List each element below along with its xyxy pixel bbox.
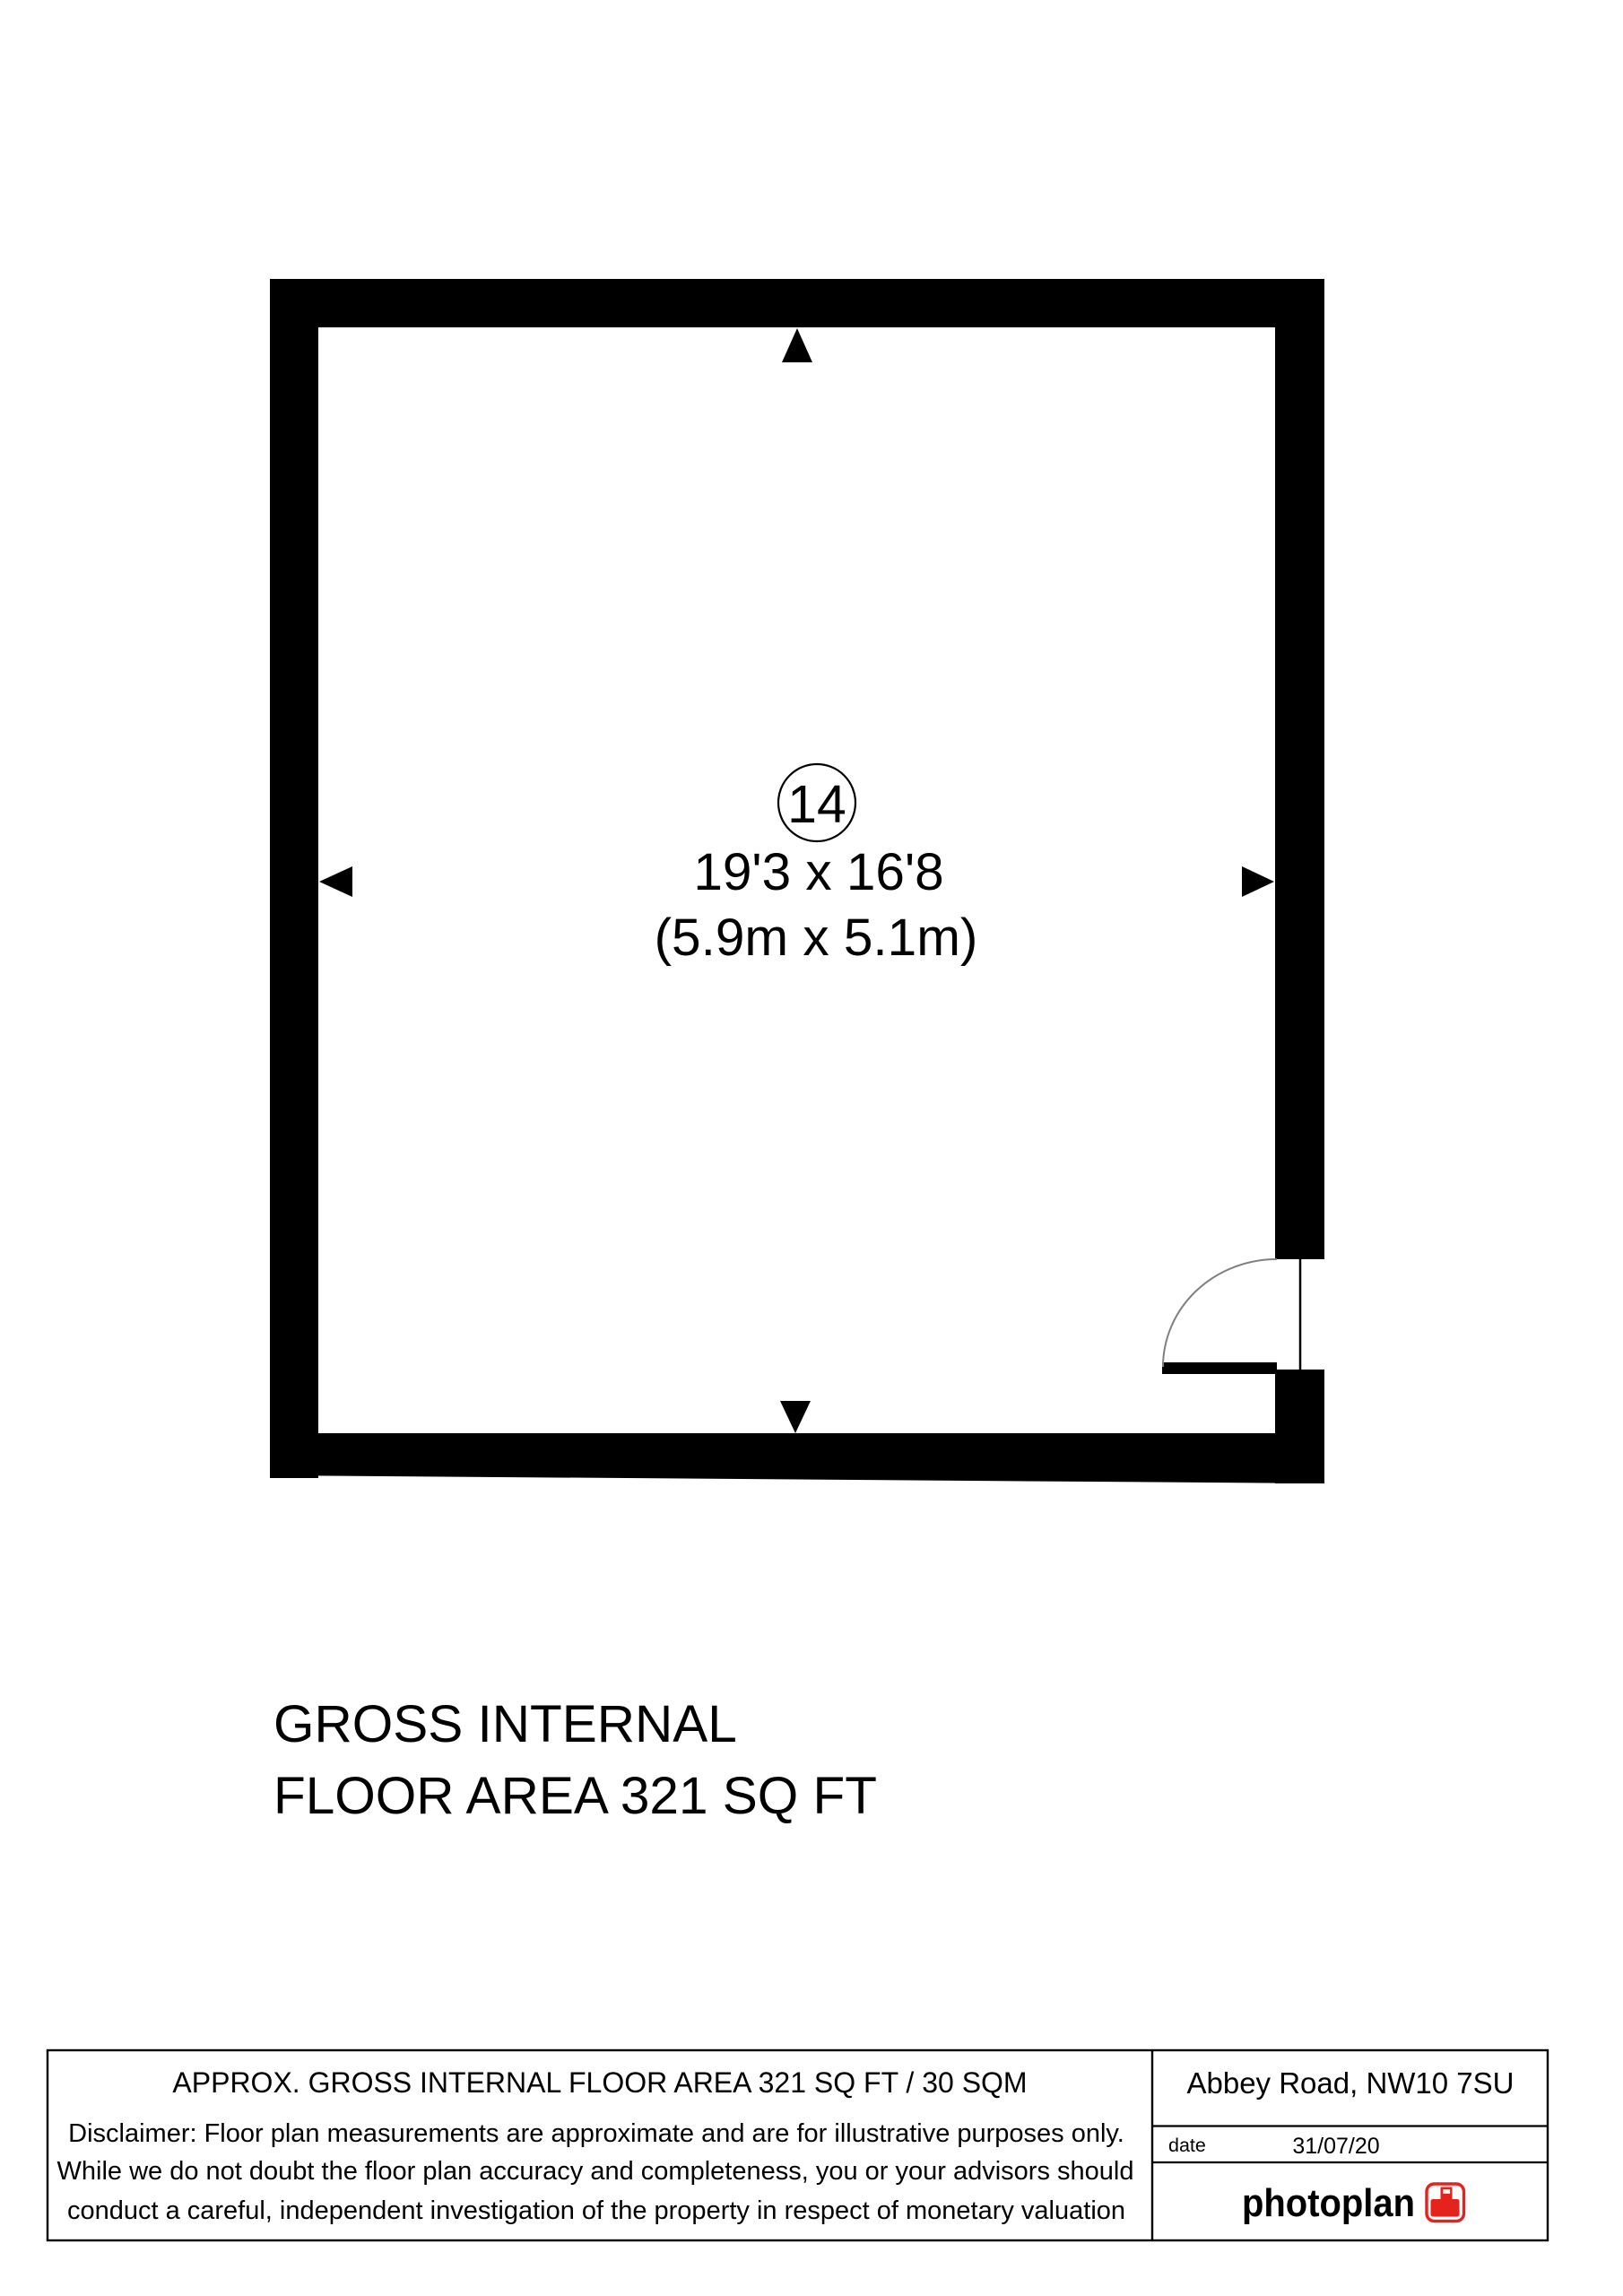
svg-text:14: 14 <box>787 775 846 834</box>
svg-text:Disclaimer: Floor plan measure: Disclaimer: Floor plan measurements are … <box>68 2119 1124 2148</box>
svg-text:FLOOR AREA 321 SQ FT: FLOOR AREA 321 SQ FT <box>273 1767 877 1825</box>
svg-text:photoplan: photoplan <box>1242 2181 1415 2225</box>
svg-text:Abbey Road, NW10 7SU: Abbey Road, NW10 7SU <box>1186 2066 1514 2100</box>
svg-text:31/07/20: 31/07/20 <box>1292 2134 1379 2159</box>
svg-text:APPROX. GROSS INTERNAL FLOOR A: APPROX. GROSS INTERNAL FLOOR AREA 321 SQ… <box>172 2066 1027 2099</box>
svg-text:While we do not doubt the floo: While we do not doubt the floor plan acc… <box>57 2157 1134 2186</box>
svg-text:(5.9m x 5.1m): (5.9m x 5.1m) <box>655 909 978 967</box>
svg-text:GROSS INTERNAL: GROSS INTERNAL <box>273 1695 737 1753</box>
svg-text:19'3 x 16'8: 19'3 x 16'8 <box>693 843 943 901</box>
svg-text:conduct a careful, independent: conduct a careful, independent investiga… <box>67 2196 1125 2225</box>
svg-text:date: date <box>1168 2135 1206 2156</box>
